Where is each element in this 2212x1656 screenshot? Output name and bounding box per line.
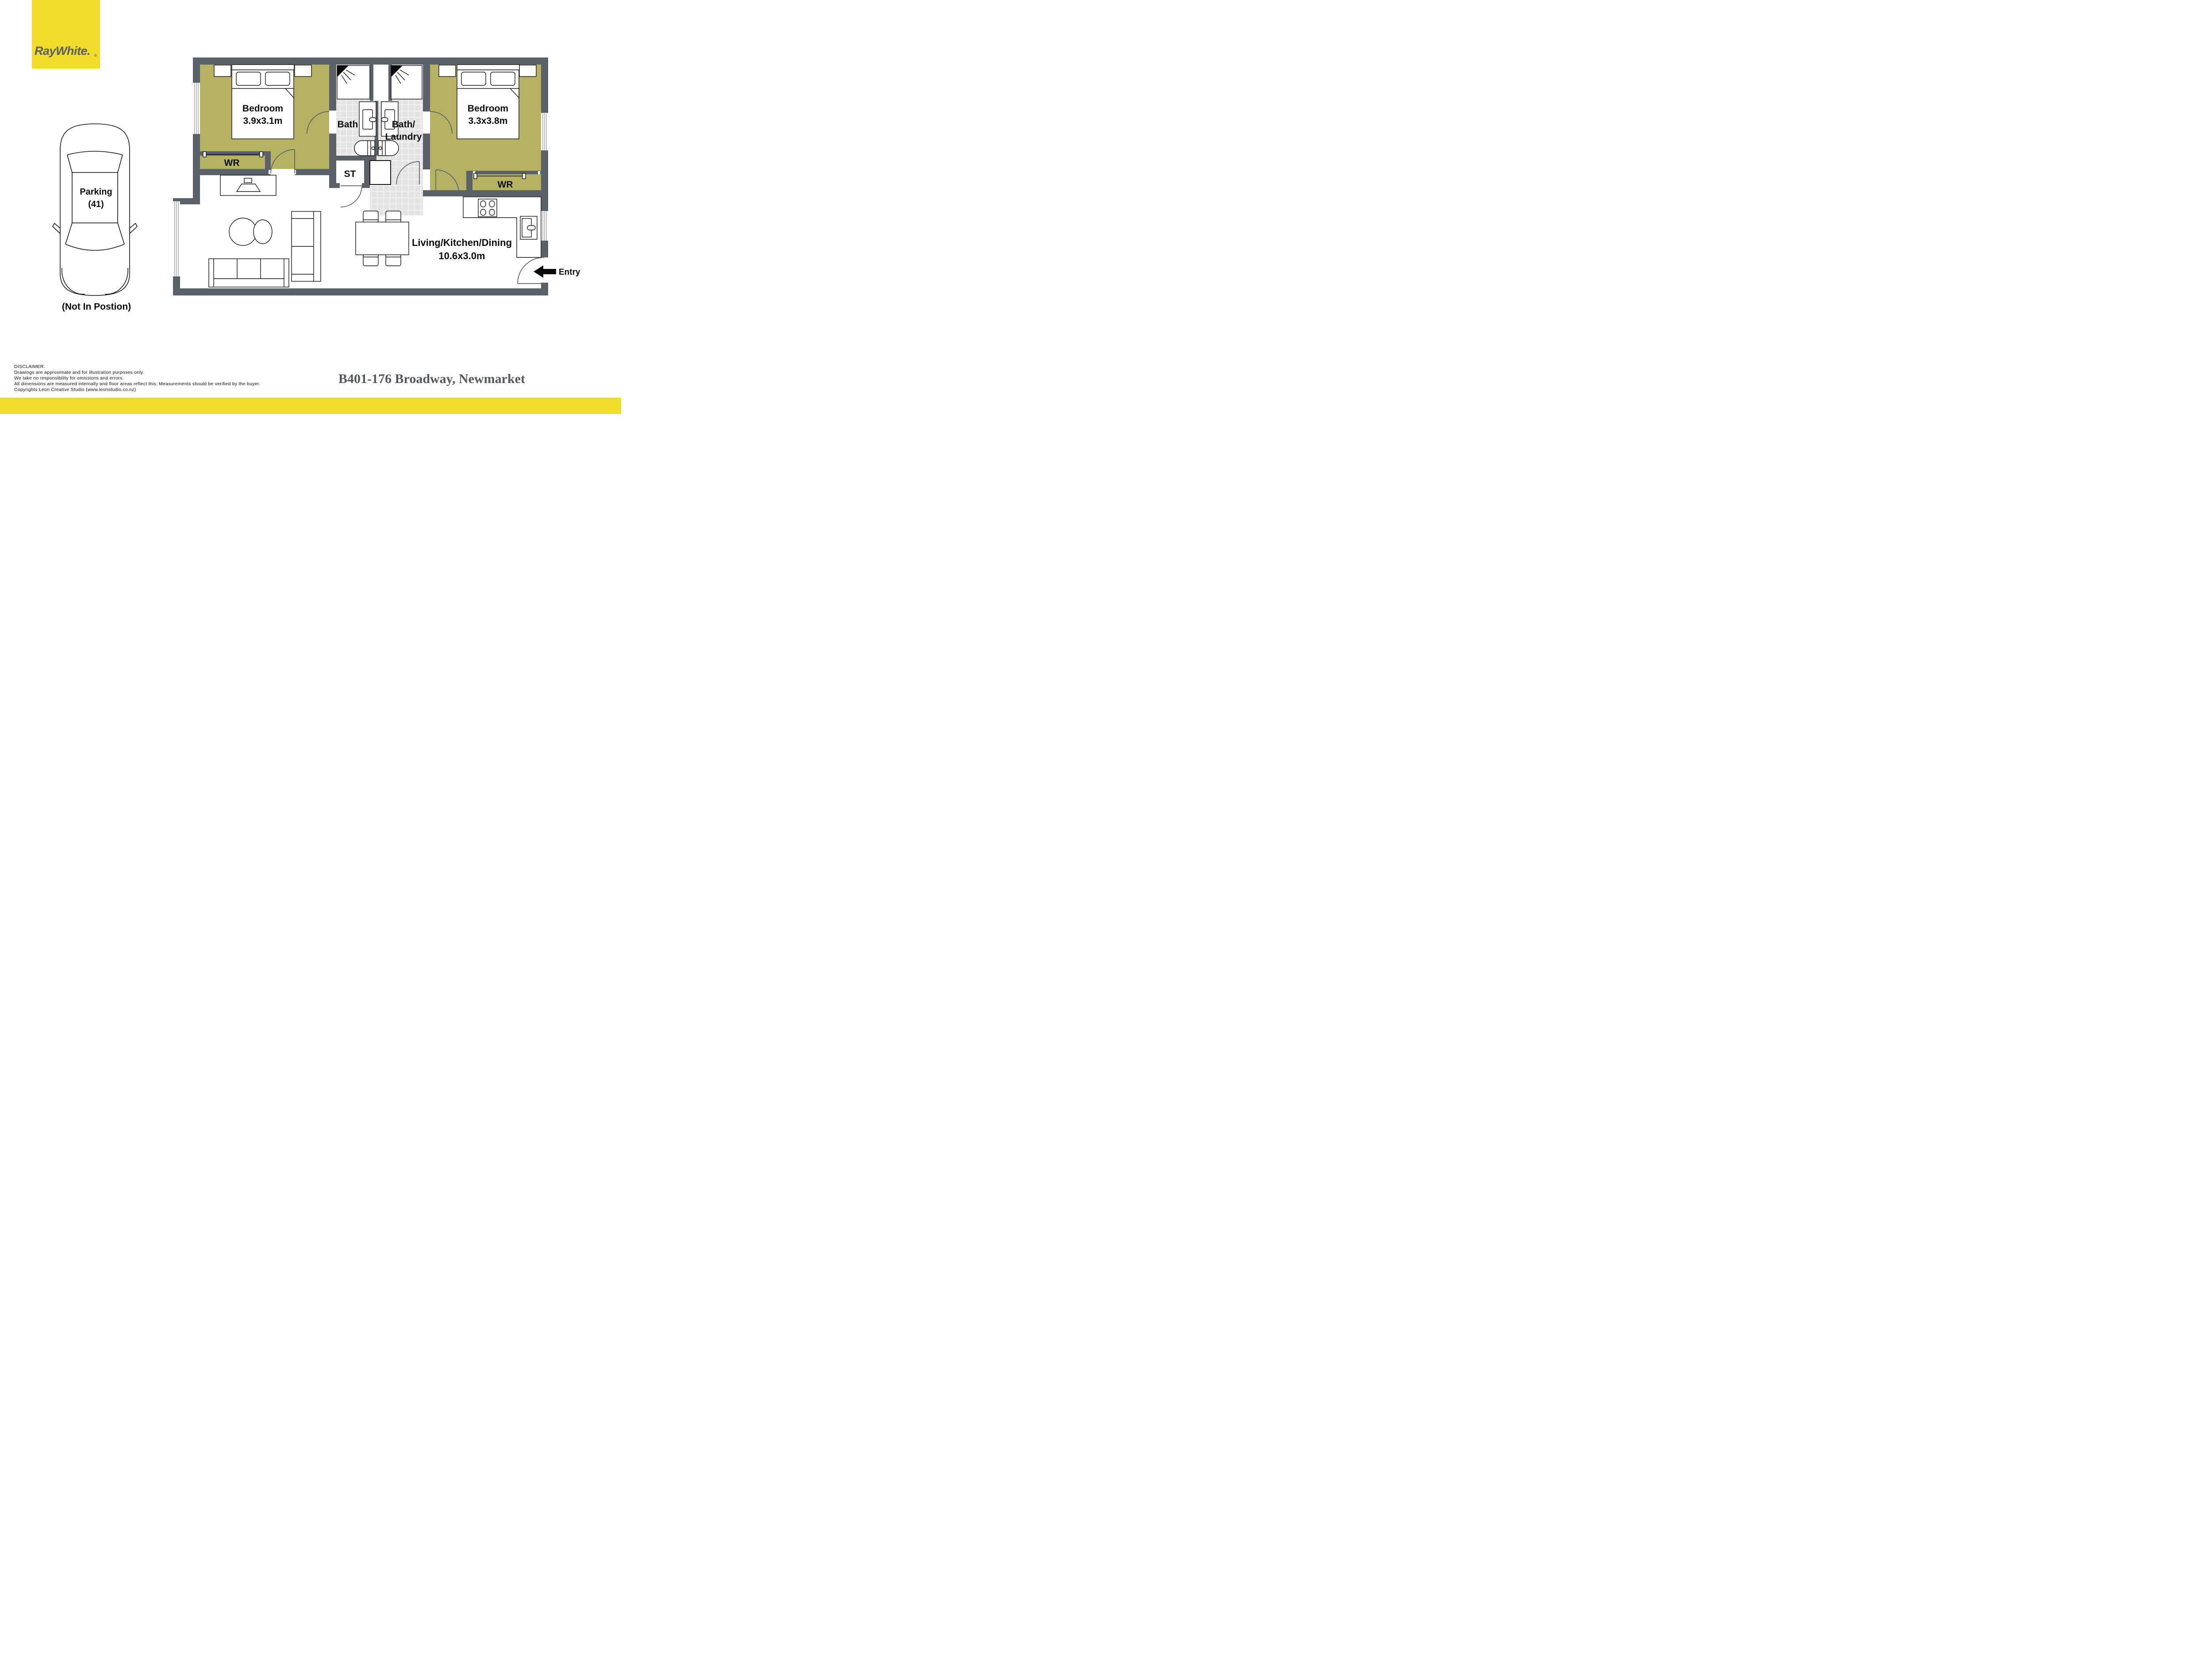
sofa-three-seat: [209, 259, 289, 287]
pillow: [265, 72, 290, 85]
living-window: [173, 201, 180, 276]
floor-plan-page: RayWhite. ®: [0, 0, 621, 414]
disclaimer-line-3: We take no responsibility for omissions …: [14, 376, 124, 381]
bedroom-1-label: Bedroom: [242, 103, 283, 114]
wardrobe-rod-end: [474, 173, 477, 179]
vanity: [354, 141, 375, 156]
car-mirror-right: [130, 223, 137, 234]
entry-label: Entry: [559, 268, 580, 277]
logo-wordmark: RayWhite.: [35, 44, 90, 57]
pillow: [491, 72, 515, 85]
toilet: [381, 102, 398, 136]
parking-number: (41): [88, 199, 104, 209]
nightstand: [519, 65, 536, 77]
bedroom-2-label: Bedroom: [468, 103, 508, 114]
parking-car: [53, 124, 137, 295]
floor-plan-canvas: RayWhite. ®: [0, 0, 621, 414]
registered-mark-icon: ®: [94, 54, 97, 57]
bed-headboard: [457, 65, 519, 70]
disclaimer-line-5: Copyrights Leon Creative Studio (www.leo…: [14, 387, 136, 392]
wardrobe-rod-end: [260, 152, 263, 157]
pillow: [461, 72, 486, 85]
wardrobe-rod-end: [203, 152, 206, 157]
toilet: [359, 102, 376, 136]
footer: DISCLAIMER: Drawings are approximate and…: [0, 364, 621, 414]
kitchen-window: [541, 211, 548, 241]
footer-brand-bar: [0, 398, 621, 414]
vanity: [378, 141, 399, 156]
bedroom-1-dims: 3.9x3.1m: [243, 116, 283, 126]
bedroom-1-wr-label: WR: [224, 158, 240, 168]
raywhite-logo: RayWhite. ®: [32, 0, 100, 69]
washing-machine: [370, 161, 391, 184]
wardrobe-rod-end: [522, 173, 526, 179]
living-dims: 10.6x3.0m: [438, 250, 485, 261]
bath-label: Bath: [338, 119, 358, 130]
car-mirror-left: [53, 223, 60, 234]
pillow: [236, 72, 261, 85]
bath-laundry-label-1: Bath/: [392, 119, 415, 130]
car-cabin: [72, 172, 118, 223]
entry: Entry: [534, 265, 580, 278]
nightstand: [214, 65, 231, 77]
nightstand: [295, 65, 311, 77]
storage-door-arc: [341, 186, 362, 207]
storage-label: ST: [344, 169, 356, 179]
bedroom-2-dims: 3.3x3.8m: [469, 116, 508, 126]
bedroom-1-window: [193, 83, 200, 134]
disclaimer-line-2: Drawings are approximate and for illustr…: [14, 370, 144, 375]
parking-label: Parking: [80, 187, 112, 197]
disclaimer-line-4: All dimensions are measured internally a…: [14, 381, 260, 387]
duct-space: [373, 65, 388, 101]
bedroom-2-window: [541, 113, 548, 150]
bedroom-2-wr-label: WR: [498, 180, 513, 190]
kitchen: [463, 197, 541, 257]
entry-arrow-icon: [534, 265, 556, 278]
bed-headboard: [232, 65, 294, 70]
parking-note: (Not In Postion): [62, 302, 131, 312]
logo-background: [32, 0, 100, 69]
coffee-table: [229, 218, 257, 245]
disclaimer-line-1: DISCLAIMER:: [14, 364, 45, 369]
nightstand: [439, 65, 456, 77]
dining-table: [356, 222, 409, 255]
living-label: Living/Kitchen/Dining: [412, 237, 512, 248]
bath-shower: [337, 65, 370, 99]
bath-laundry-label-2: Laundry: [385, 132, 422, 142]
bath-laundry-shower: [391, 65, 422, 99]
sofa-two-seat: [292, 211, 321, 281]
cooktop-icon: [478, 199, 497, 217]
door-jamb: [538, 171, 540, 174]
side-table: [253, 220, 272, 244]
sink-icon: [520, 216, 537, 239]
tv-unit: [220, 175, 276, 195]
property-address: B401-176 Broadway, Newmarket: [338, 372, 525, 386]
